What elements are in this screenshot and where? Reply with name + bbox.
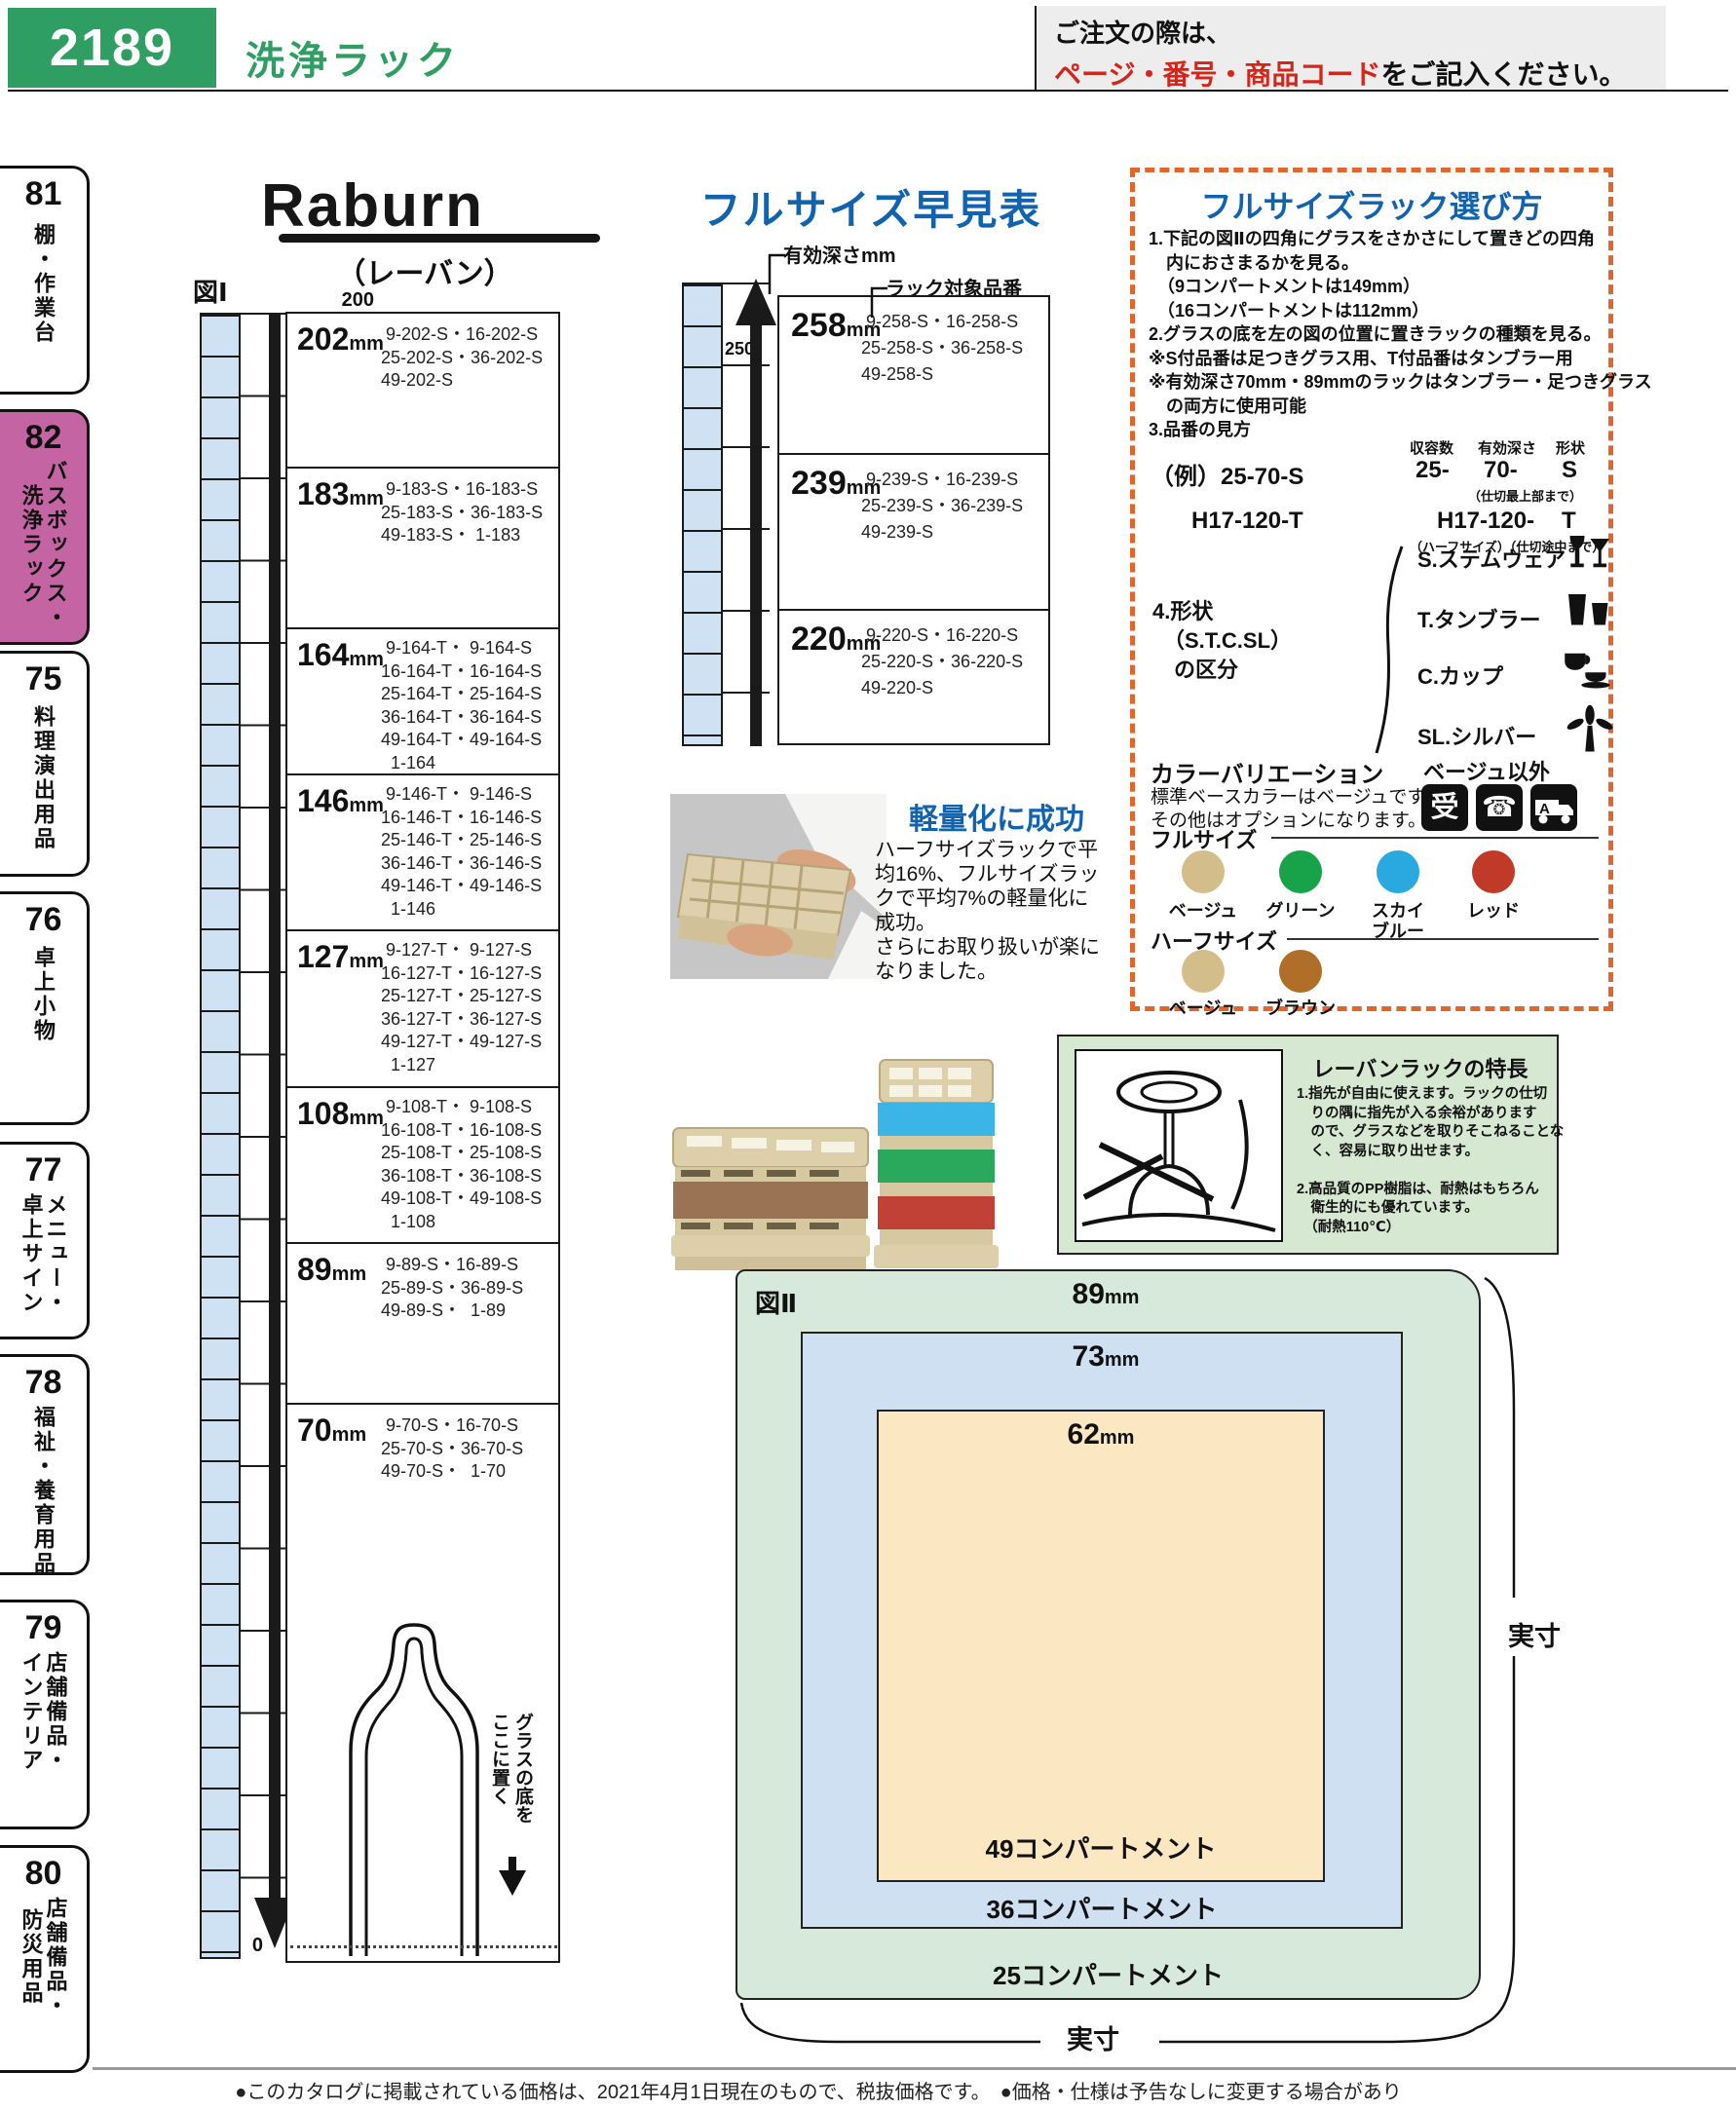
halfsize-label: ハーフサイズ <box>1151 924 1277 956</box>
tab-label: 棚・作業台 <box>31 215 56 352</box>
size-unit: mm <box>349 1108 384 1129</box>
tab-label: 料理演出用品 <box>31 700 56 856</box>
lightweight-title: 軽量化に成功 <box>909 795 1084 838</box>
size-value: 89 <box>297 1252 332 1287</box>
size-value: 146 <box>297 783 349 818</box>
size-unit: mm <box>349 951 384 972</box>
example-header-depth: 有効深さ <box>1478 437 1536 458</box>
size-row-70: 70mm 9-70-S・16-70-S 25-70-S・36-70-S 49-7… <box>287 1403 558 1600</box>
delivery-truck-icon: A <box>1530 784 1577 831</box>
size-value: 258 <box>791 307 847 344</box>
shape-stemware-label: S.ステムウェア <box>1417 543 1566 574</box>
fig2-size-73: 73mm <box>877 1340 1335 1374</box>
shape-silver-label: SL.シルバー <box>1417 720 1536 751</box>
shape-brace <box>1375 545 1406 755</box>
size-row-164: 164mm 9-164-T・ 9-164-S 16-164-T・16-164-S… <box>287 627 558 773</box>
fig2-label: 図Ⅱ <box>755 1284 797 1320</box>
order-note-tail: をご記入ください。 <box>1380 59 1626 90</box>
glass-in-rack-svg <box>1076 1051 1281 1240</box>
size-row-258: 258mm 9-258-S・16-258-S 25-258-S・36-258-S… <box>779 297 1048 453</box>
size-row-239: 239mm 9-239-S・16-239-S 25-239-S・36-239-S… <box>779 453 1048 609</box>
size-unit: mm <box>1105 1287 1140 1308</box>
size-unit: mm <box>349 795 384 816</box>
sidebar-tab-82-active: 82 バスボックス・洗浄ラック <box>0 409 90 645</box>
swatch-label-green: グリーン <box>1252 901 1349 922</box>
size-value: 239 <box>791 465 847 502</box>
tab-label: 卓上小物 <box>31 941 56 1048</box>
quickref-depth-arrow-head <box>736 279 776 325</box>
non-beige-label: ベージュ以外 <box>1423 755 1550 786</box>
size-unit: mm <box>1100 1427 1135 1449</box>
fig2-25-compartment-label: 25コンパートメント <box>736 1956 1481 1992</box>
size-label: 202mm <box>297 321 384 358</box>
product-codes: 9-127-T・ 9-127-S 16-127-T・16-127-S 25-12… <box>381 939 542 1076</box>
product-codes: 9-183-S・16-183-S 25-183-S・36-183-S 49-18… <box>381 478 543 547</box>
tab-number: 79 <box>0 1602 87 1647</box>
product-codes: 9-258-S・16-258-S 25-258-S・36-258-S 49-25… <box>861 309 1023 388</box>
quickref-depth-arrow-bar <box>750 323 762 746</box>
size-label: 146mm <box>297 783 384 819</box>
shape-section-label: 4.形状 （S.T.C.SL） の区分 <box>1152 597 1292 685</box>
actual-size-label-right: 実寸 <box>1508 1615 1561 1653</box>
sidebar-tab-78: 78 福祉・養育用品 <box>0 1354 90 1575</box>
size-value: 73 <box>1073 1340 1105 1373</box>
sidebar-tab-79: 79 店舗備品・インテリア <box>0 1600 90 1829</box>
tab-number: 81 <box>0 169 87 213</box>
guide-title: フルサイズラック選び方 <box>1135 182 1608 227</box>
example-shape-1: S <box>1562 457 1577 484</box>
swatch-label-brown: ブラウン <box>1252 998 1349 1019</box>
fig2-right-brace <box>1476 1278 1514 2028</box>
size-row-127: 127mm 9-127-T・ 9-127-S 16-127-T・16-127-S… <box>287 929 558 1086</box>
size-label: 89mm <box>297 1252 366 1288</box>
size-value: 164 <box>297 637 349 672</box>
swatch-red <box>1472 850 1515 893</box>
swatch-beige-full <box>1182 850 1225 893</box>
example-depth-1: 70- <box>1484 457 1518 484</box>
fig2-49-compartment-label: 49コンパートメント <box>877 1829 1325 1865</box>
size-label: 70mm <box>297 1413 366 1449</box>
stemware-icon <box>1566 531 1612 576</box>
order-note-box: ご注文の際は、 ページ・番号・商品コードをご記入ください。 <box>1035 6 1666 90</box>
page-title: 洗浄ラック <box>245 29 460 86</box>
glass-bottom-note: グラスの底を ここに置く <box>487 1713 534 1868</box>
tab-number: 77 <box>0 1145 87 1189</box>
size-unit: mm <box>332 1424 367 1446</box>
size-value: 127 <box>297 939 349 974</box>
brand-logo-underline <box>279 234 600 243</box>
zero-level-dotted-line <box>290 1945 557 1948</box>
quickref-ruler <box>682 283 723 746</box>
product-codes: 9-164-T・ 9-164-S 16-164-T・16-164-S 25-16… <box>381 637 542 774</box>
ruler-tick-200: 200 <box>292 289 374 312</box>
brand-logo: Raburn <box>261 171 484 241</box>
quickref-table: 258mm 9-258-S・16-258-S 25-258-S・36-258-S… <box>777 295 1050 745</box>
size-unit: mm <box>349 649 384 670</box>
fig2-36-compartment-label: 36コンパートメント <box>801 1890 1403 1926</box>
swatch-label-skyblue: スカイ ブルー <box>1349 901 1447 942</box>
swatch-green <box>1279 850 1322 893</box>
fig1-ruler <box>200 313 241 1959</box>
swatch-label-beige-half: ベージュ <box>1154 998 1252 1019</box>
example-note-1: （仕切最上部まで） <box>1468 486 1582 505</box>
product-codes: 9-239-S・16-239-S 25-239-S・36-239-S 49-23… <box>861 467 1023 546</box>
sidebar-tab-81: 81 棚・作業台 <box>0 166 90 395</box>
footer-note: ●このカタログに掲載されている価格は、2021年4月1日現在のもので、税抜価格で… <box>234 2076 1403 2110</box>
tab-label: 店舗備品・インテリア <box>19 1649 68 1774</box>
glass-in-rack-drawing <box>1075 1049 1283 1242</box>
shape-tumbler-label: T.タンブラー <box>1417 603 1540 634</box>
effective-depth-label: 有効深さmm <box>783 240 896 268</box>
order-note-line2: ページ・番号・商品コードをご記入ください。 <box>1054 54 1666 93</box>
tab-number: 75 <box>0 654 87 698</box>
product-codes: 9-220-S・16-220-S 25-220-S・36-220-S 49-22… <box>861 622 1023 701</box>
glass-outer-contour <box>351 1625 477 1956</box>
size-unit: mm <box>349 333 384 355</box>
fullsize-rule <box>1271 837 1599 839</box>
size-row-220: 220mm 9-220-S・16-220-S 25-220-S・36-220-S… <box>779 609 1048 747</box>
svg-text:A: A <box>1539 801 1550 817</box>
arrow-stem <box>509 1857 516 1870</box>
features-body: 1.指先が自由に使えます。ラックの仕切 りの隅に指先が入る余裕があります ので、… <box>1297 1085 1564 1237</box>
raburn-features-box: レーバンラックの特長 1.指先が自由に使えます。ラックの仕切 りの隅に指先が入る… <box>1057 1035 1559 1255</box>
tab-number: 78 <box>0 1357 87 1402</box>
cup-icon <box>1562 648 1612 691</box>
tab-label: メニュー・卓上サイン <box>19 1191 68 1316</box>
size-row-108: 108mm 9-108-T・ 9-108-S 16-108-T・16-108-S… <box>287 1086 558 1242</box>
order-note-highlight: ページ・番号・商品コード <box>1054 59 1380 90</box>
size-value: 202 <box>297 321 349 357</box>
fig1-depth-arrow-bar <box>269 313 281 1901</box>
arrow-head <box>499 1870 526 1896</box>
size-value: 89 <box>1073 1278 1105 1310</box>
upside-down-glass-outline <box>341 1605 487 1956</box>
size-label: 108mm <box>297 1096 384 1132</box>
sidebar-tab-80: 80 店舗備品・防災用品 <box>0 1845 90 2073</box>
size-label: 127mm <box>297 939 384 975</box>
tumbler-icon <box>1566 589 1612 634</box>
product-codes: 9-146-T・ 9-146-S 16-146-T・16-146-S 25-14… <box>381 783 542 921</box>
size-unit: mm <box>349 488 384 509</box>
size-value: 183 <box>297 476 349 511</box>
fig2-size-89: 89mm <box>877 1278 1335 1311</box>
lightweight-body: ハーフサイズラックで平 均16%、フルサイズラッ クで平均7%の軽量化に 成功。… <box>875 838 1100 984</box>
size-row-202: 202mm 9-202-S・16-202-S 25-202-S・36-202-S… <box>287 314 558 467</box>
sidebar-tab-77: 77 メニュー・卓上サイン <box>0 1142 90 1339</box>
sidebar-tab-75: 75 料理演出用品 <box>0 651 90 877</box>
size-row-89: 89mm 9-89-S・16-89-S 25-89-S・36-89-S 49-8… <box>287 1242 558 1403</box>
tab-number: 80 <box>0 1848 87 1893</box>
example-value-2: H17-120- <box>1437 508 1534 535</box>
product-codes: 9-202-S・16-202-S 25-202-S・36-202-S 49-20… <box>381 323 543 393</box>
color-variation-title: カラーバリエーション <box>1151 755 1383 789</box>
fig1-label: 図Ⅰ <box>193 273 228 309</box>
tab-label: 店舗備品・防災用品 <box>19 1895 68 2019</box>
tab-label: バスボックス・洗浄ラック <box>19 459 68 630</box>
hands-holding-rack-photo <box>670 794 887 979</box>
features-title: レーバンラックの特長 <box>1293 1052 1548 1083</box>
tab-number: 76 <box>0 894 87 939</box>
size-label: 164mm <box>297 637 384 673</box>
size-row-146: 146mm 9-146-T・ 9-146-S 16-146-T・16-146-S… <box>287 773 558 929</box>
swatch-label-red: レッド <box>1445 901 1542 922</box>
swatch-label-beige: ベージュ <box>1154 901 1252 922</box>
example-code-2: H17-120-T <box>1191 508 1303 535</box>
brand-reading: （レーバン） <box>288 249 561 292</box>
size-row-183: 183mm 9-183-S・16-183-S 25-183-S・36-183-S… <box>287 467 558 627</box>
phone-icon: ☎ <box>1476 784 1523 831</box>
fig2-size-62: 62mm <box>877 1418 1325 1451</box>
example-code-1: （例）25-70-S <box>1151 457 1303 491</box>
product-codes: 9-89-S・16-89-S 25-89-S・36-89-S 49-89-S・ … <box>381 1254 523 1323</box>
swatch-beige-half <box>1182 950 1225 993</box>
tab-number: 82 <box>0 412 87 457</box>
fig2-inner-rect-49 <box>877 1410 1325 1882</box>
page-number-badge: 2189 <box>8 8 216 88</box>
swatch-brown <box>1279 950 1322 993</box>
catalog-page: 2189 洗浄ラック ご注文の際は、 ページ・番号・商品コードをご記入ください。… <box>0 0 1736 2110</box>
example-capacity-1: 25- <box>1415 457 1450 484</box>
example-header-shape: 形状 <box>1556 437 1585 458</box>
sidebar-tab-76: 76 卓上小物 <box>0 891 90 1125</box>
actual-size-label-bottom: 実寸 <box>1067 2018 1119 2056</box>
silverware-icon <box>1566 704 1614 753</box>
product-codes: 9-70-S・16-70-S 25-70-S・36-70-S 49-70-S・ … <box>381 1414 523 1484</box>
example-header-capacity: 収容数 <box>1410 437 1453 458</box>
glass-note-down-arrow <box>499 1857 526 1896</box>
footer-rule <box>93 2067 1736 2070</box>
tab-label: 福祉・養育用品 <box>31 1404 56 1577</box>
size-value: 220 <box>791 621 847 658</box>
rack-selection-guide-box: フルサイズラック選び方 1.下記の図Ⅱの四角にグラスをさかさにして置きどの四角 … <box>1130 168 1613 1011</box>
size-unit: mm <box>1105 1349 1140 1371</box>
order-note-line1: ご注文の際は、 <box>1054 14 1666 50</box>
size-unit: mm <box>332 1263 367 1285</box>
size-value: 108 <box>297 1096 349 1131</box>
left-rack-stack <box>671 1128 870 1270</box>
product-codes: 9-108-T・ 9-108-S 16-108-T・16-108-S 25-10… <box>381 1096 542 1233</box>
shape-cup-label: C.カップ <box>1417 659 1503 691</box>
order-accept-icon: 受 <box>1421 784 1468 831</box>
stacked-racks-photo <box>667 1052 999 1281</box>
quickref-title: フルサイズ早見表 <box>670 177 1072 237</box>
size-value: 70 <box>297 1413 332 1448</box>
size-label: 183mm <box>297 476 384 512</box>
right-rack-stack <box>874 1060 999 1268</box>
halfsize-rule <box>1287 938 1599 940</box>
guide-steps: 1.下記の図Ⅱの四角にグラスをさかさにして置きどの四角 内におさまるかを見る。 … <box>1149 227 1652 442</box>
swatch-skyblue <box>1377 850 1419 893</box>
size-value: 62 <box>1068 1418 1100 1451</box>
